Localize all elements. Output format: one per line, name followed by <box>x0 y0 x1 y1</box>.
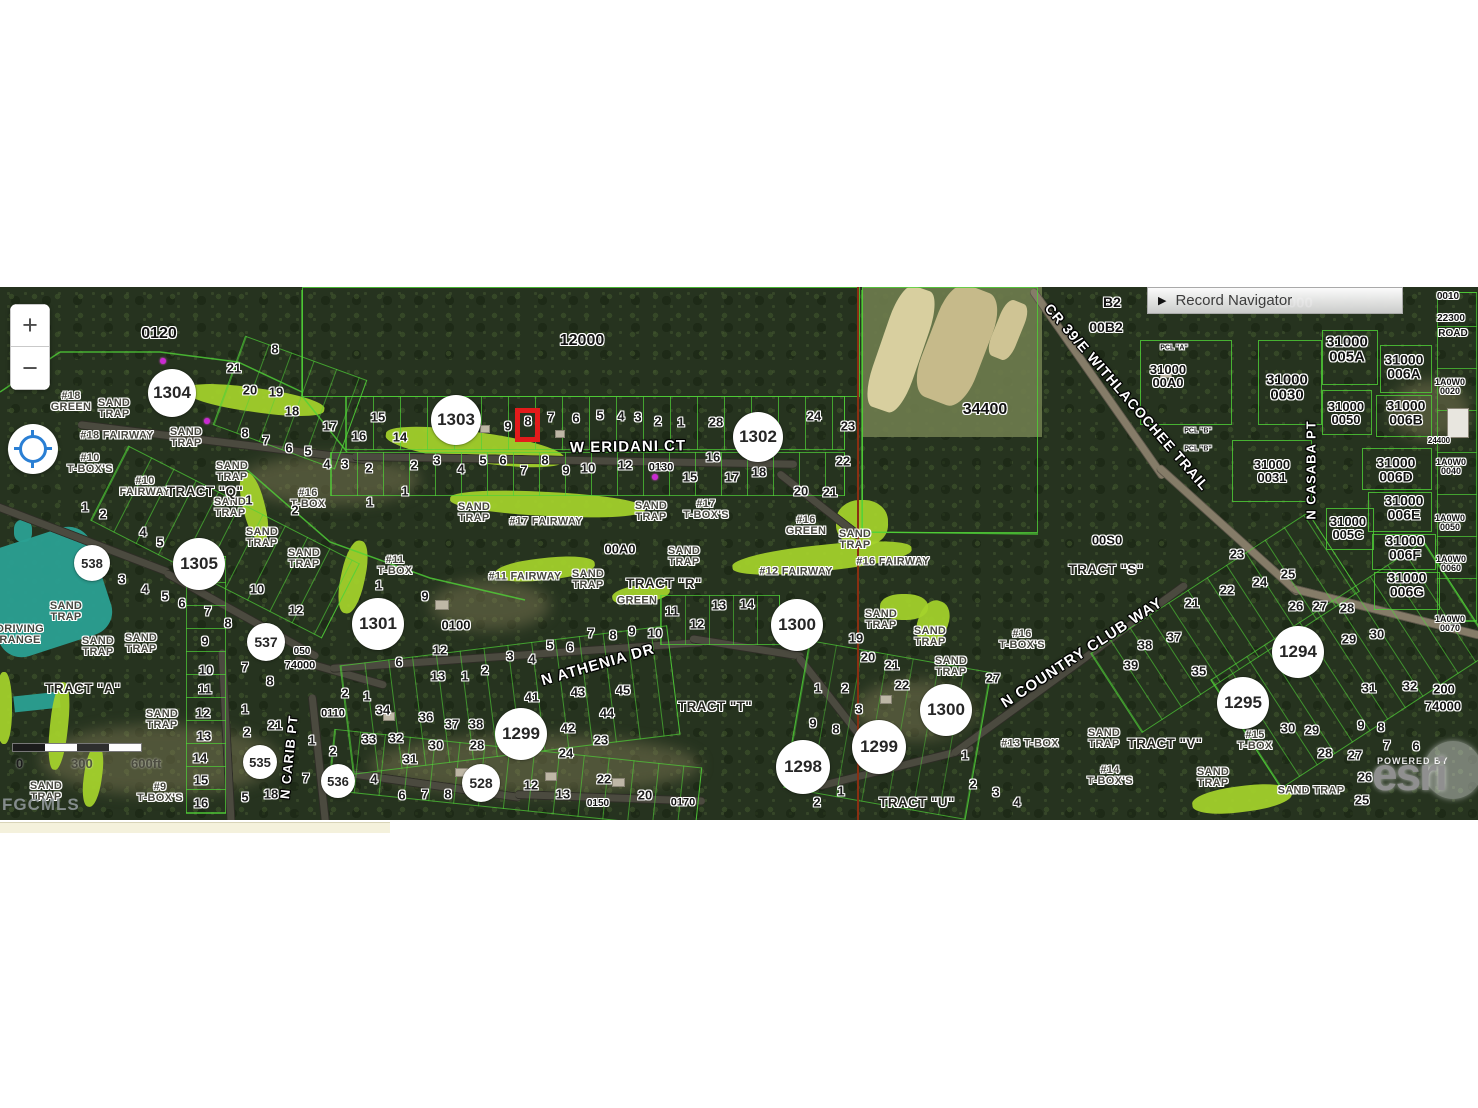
crosshair-icon <box>19 435 47 463</box>
record-navigator-label: Record Navigator <box>1175 292 1292 309</box>
block-number-circle: 1302 <box>733 412 783 462</box>
block-number-circle: 528 <box>462 764 500 802</box>
block-number-circle: 1294 <box>1272 626 1324 678</box>
zoom-out-button[interactable]: − <box>10 347 50 390</box>
esri-logo: esri <box>1372 753 1472 813</box>
zoom-control: + − <box>10 304 50 390</box>
block-number-circle: 1300 <box>771 599 823 651</box>
scale-bar: 0 300 600ft <box>13 744 163 774</box>
block-number-circle: 536 <box>321 764 355 798</box>
block-number-circle: 1295 <box>1217 677 1269 729</box>
zoom-in-button[interactable]: + <box>10 304 50 347</box>
block-number-circle: 1298 <box>776 740 830 794</box>
scale-label-start: 0 <box>16 756 23 771</box>
mls-watermark: FGCMLS <box>2 795 80 815</box>
block-number-circle: 537 <box>247 623 285 661</box>
scale-label-mid: 300 <box>71 756 93 771</box>
block-number-circle: 1300 <box>920 684 972 736</box>
block-number-circle: 1299 <box>852 720 906 774</box>
block-number-circle: 1304 <box>148 369 196 417</box>
block-number-circle: 535 <box>243 745 277 779</box>
scale-label-end: 600ft <box>131 756 161 771</box>
block-number-circle: 1299 <box>495 708 547 760</box>
block-number-circle: 1301 <box>352 598 404 650</box>
scale-bar-segments <box>13 744 141 751</box>
locate-button[interactable] <box>8 424 58 474</box>
record-navigator-header[interactable]: ▶ Record Navigator <box>1147 287 1403 314</box>
bottom-panel-edge <box>0 822 390 833</box>
block-number-circle: 538 <box>74 545 110 581</box>
block-number-circle: 1303 <box>431 395 481 445</box>
parcel-map-canvas[interactable]: #18 GREENSAND TRAPSAND TRAP#18 FAIRWAY#1… <box>0 287 1478 820</box>
expand-arrow-icon: ▶ <box>1158 294 1166 307</box>
screenshot-root: #18 GREENSAND TRAPSAND TRAP#18 FAIRWAY#1… <box>0 0 1478 1108</box>
block-number-circle: 1305 <box>173 538 225 590</box>
esri-logo-text: esri <box>1372 747 1446 801</box>
